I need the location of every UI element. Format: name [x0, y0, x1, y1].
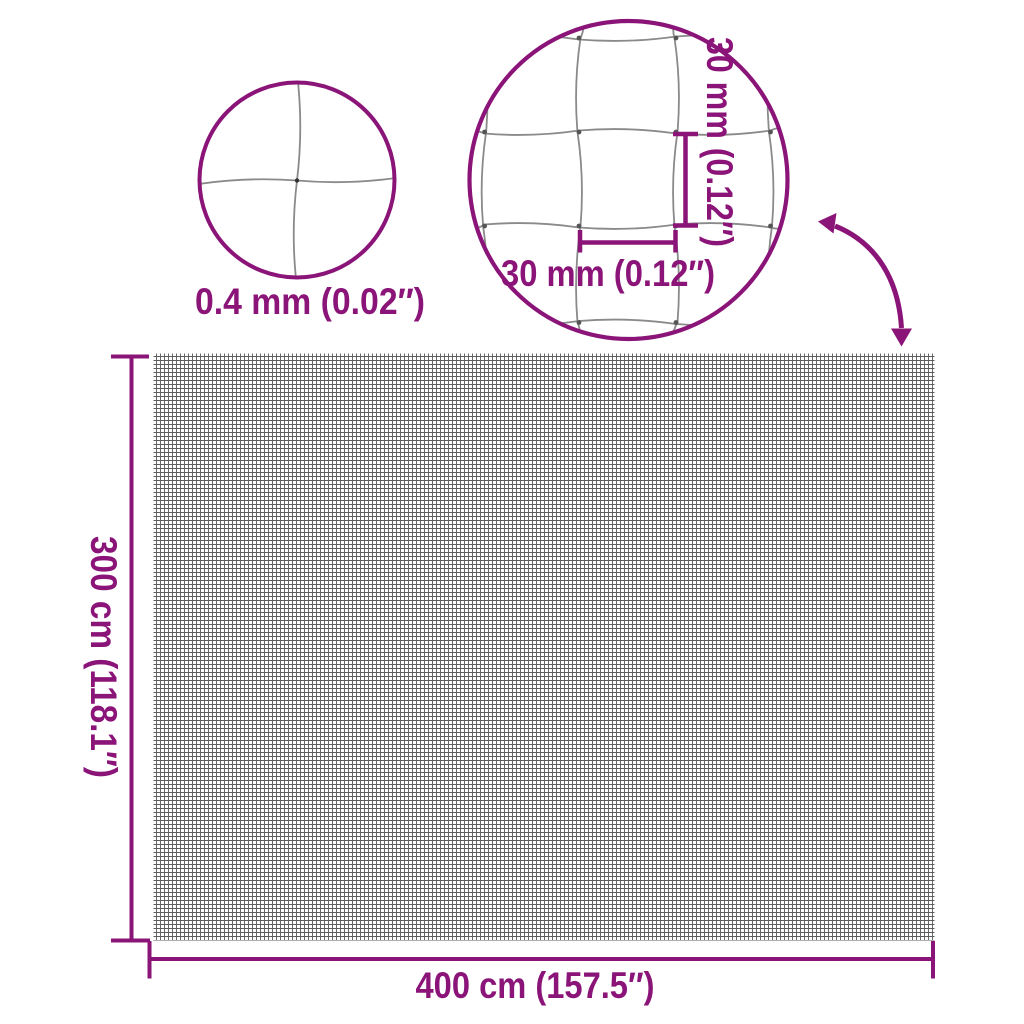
svg-text:30 mm (0.12″): 30 mm (0.12″) — [501, 253, 715, 294]
svg-text:300 cm (118.1″): 300 cm (118.1″) — [83, 536, 124, 778]
svg-text:400 cm (157.5″): 400 cm (157.5″) — [416, 965, 655, 1006]
svg-text:30 mm (0.12″): 30 mm (0.12″) — [699, 37, 740, 247]
svg-text:0.4 mm (0.02″): 0.4 mm (0.02″) — [195, 281, 425, 322]
